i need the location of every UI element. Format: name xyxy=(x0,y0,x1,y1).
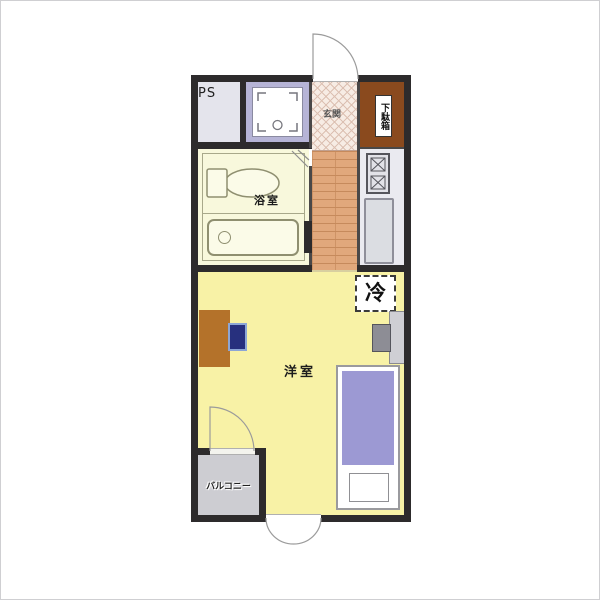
shoe-cabinet-label: 下駄箱 xyxy=(379,103,388,130)
room-balcony: バルコニー xyxy=(198,455,259,515)
entrance-door-swing-icon xyxy=(313,34,358,79)
pillow-icon xyxy=(349,473,389,502)
bathroom-label: 浴室 xyxy=(254,192,280,208)
wall xyxy=(357,265,411,272)
room-shoe-cabinet: 下駄箱 xyxy=(360,82,404,147)
wall xyxy=(191,515,266,522)
hallway-room-boundary xyxy=(312,270,357,272)
wall xyxy=(198,142,312,149)
wall xyxy=(259,448,266,522)
bed-icon xyxy=(336,365,400,510)
refrigerator-label: 冷 xyxy=(365,283,386,304)
wall xyxy=(360,147,404,149)
tv-stand-icon xyxy=(389,311,405,364)
refrigerator-space: 冷 xyxy=(355,275,396,312)
chair-icon xyxy=(228,323,247,351)
kitchen-counter-icon xyxy=(364,198,394,264)
entrance-step-line xyxy=(312,150,357,151)
washing-machine-pan-icon xyxy=(252,87,303,137)
shoe-cabinet-label-box: 下駄箱 xyxy=(375,95,392,137)
tv-icon xyxy=(372,324,391,352)
wall xyxy=(191,75,313,82)
balcony-label: バルコニー xyxy=(206,479,251,492)
bathtub-drain-icon xyxy=(218,231,231,244)
wall xyxy=(304,221,312,253)
two-burner-stove-icon xyxy=(366,153,390,194)
wall xyxy=(357,82,360,265)
western-room-label: 洋室 xyxy=(284,361,316,380)
wall xyxy=(240,82,246,148)
kitchen-area xyxy=(360,149,404,265)
room-pipe-space: PS xyxy=(198,82,240,142)
exterior-door-opening xyxy=(266,514,321,521)
hallway-floor xyxy=(312,151,357,272)
bathroom-divider-line xyxy=(202,213,305,214)
entrance-label: 玄関 xyxy=(323,107,341,120)
wall xyxy=(191,448,210,455)
desk-icon xyxy=(199,310,230,367)
wall xyxy=(309,82,312,148)
entrance-door-opening xyxy=(313,75,358,82)
wall xyxy=(404,75,411,522)
floor-plan-image: PS 玄関 下駄箱 浴室 xyxy=(0,0,600,600)
balcony-door-opening xyxy=(210,448,255,455)
pipe-space-label: PS xyxy=(198,86,216,101)
room-laundry-space xyxy=(246,82,309,142)
wall xyxy=(191,265,312,272)
exterior-door-swing-icon xyxy=(266,518,321,544)
bathtub-icon xyxy=(207,219,299,256)
wall xyxy=(321,515,411,522)
mattress-icon xyxy=(342,371,394,465)
